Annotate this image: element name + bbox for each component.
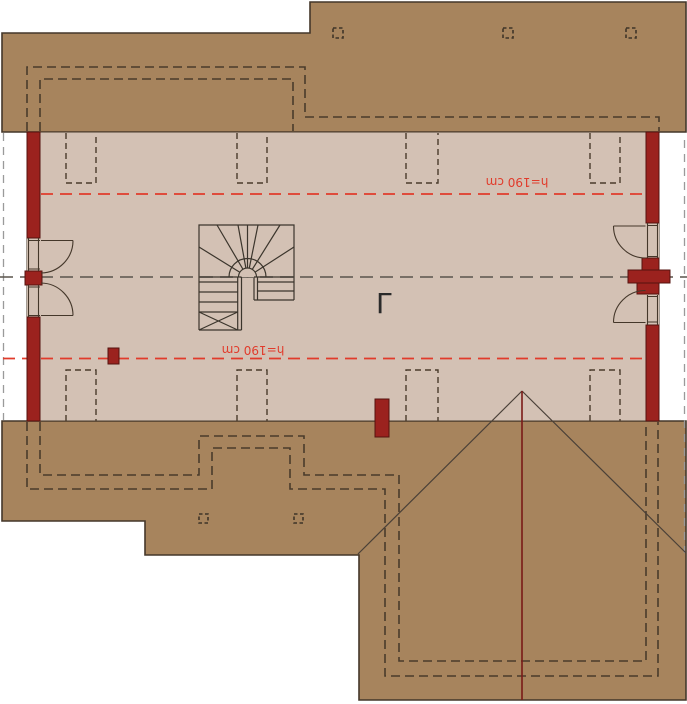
height-label-lower: h=190 cm (222, 343, 285, 357)
chimney-bottom-stub (637, 283, 659, 294)
left-wall-upper (27, 132, 40, 238)
red-post-tall (375, 399, 389, 437)
section-mark: Γ (376, 287, 392, 320)
left-wall-pier (25, 271, 42, 285)
floor-plan-drawing: h=190 cm h=190 cm (0, 0, 687, 704)
height-label-upper: h=190 cm (486, 175, 549, 189)
left-wall-lower (27, 317, 40, 421)
right-wall-upper (646, 132, 659, 223)
chimney-body (628, 270, 670, 283)
floor-plan-canvas: h=190 cm h=190 cm (0, 0, 687, 704)
right-wall-lower (646, 325, 659, 421)
red-post-small (108, 348, 119, 364)
chimney-top-stub (642, 258, 659, 270)
